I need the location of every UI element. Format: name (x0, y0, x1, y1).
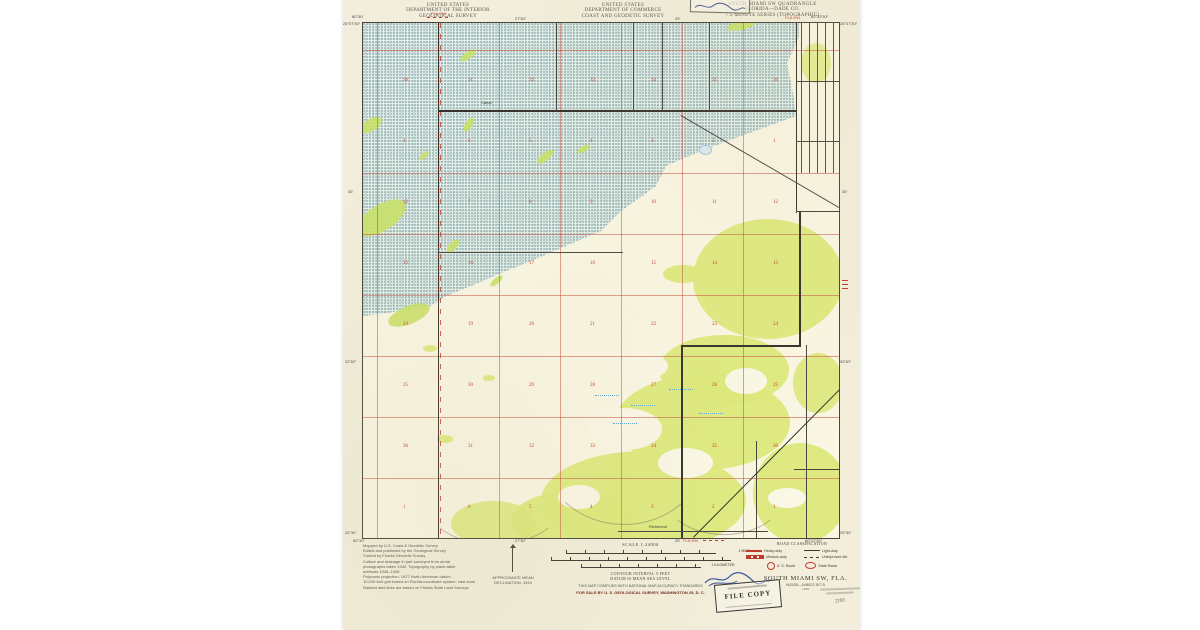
section-number: 34 (651, 444, 656, 449)
section-number: 11 (712, 200, 717, 205)
section-number: 15 (651, 261, 656, 266)
coord-bottom-left-lat: 25°30′ (345, 531, 356, 535)
section-number: 13 (403, 261, 408, 266)
file-copy-text: FILE COPY (716, 588, 780, 602)
stamp-smudge (820, 587, 860, 590)
section-number: 12 (773, 200, 778, 205)
tick-right-b: 32′30″ (840, 360, 851, 364)
section-number: 31 (468, 78, 473, 83)
tick-left-b: 32′30″ (345, 360, 356, 364)
section-number: 1 (773, 505, 776, 510)
scale-bar-feet: 7000 FEET (551, 557, 731, 561)
section-number: 33 (590, 78, 595, 83)
scale-bar-km-label: 1 KILOMETER (711, 563, 734, 567)
section-number: 4 (590, 139, 593, 144)
section-number: 2 (712, 139, 715, 144)
tick-bottom-a: 27′30″ (515, 539, 526, 543)
section-number: 6 (468, 139, 471, 144)
section-number: 24 (773, 322, 778, 327)
section-number: 25 (403, 383, 408, 388)
tick-top-a: 27′30″ (515, 17, 526, 21)
map-area: 3631323334353616543211278910111213181716… (362, 22, 840, 539)
cutoff-stamp (690, 0, 750, 14)
section-number: 21 (590, 322, 595, 327)
section-number: 2 (712, 505, 715, 510)
state-route-icon (805, 562, 816, 569)
stamp-scribble-icon (691, 0, 747, 13)
red-margin-mark (842, 288, 848, 289)
section-number: 4 (590, 505, 593, 510)
section-number: 35 (712, 78, 717, 83)
road-classification: ROAD CLASSIFICATION Heavy-duty Light-dut… (746, 541, 858, 570)
road-ref-top-label: FLA 994 (431, 12, 446, 16)
section-number: 6 (468, 505, 471, 510)
section-number: 1 (773, 139, 776, 144)
received-date-stamp (820, 584, 860, 597)
section-number: 29 (529, 383, 534, 388)
coord-bottom-right-lat: 25°30′ (840, 531, 851, 535)
section-number: 24 (403, 322, 408, 327)
declination-line (512, 546, 513, 572)
section-numbers-layer: 3631323334353616543211278910111213181716… (363, 23, 839, 538)
section-number: 36 (773, 78, 778, 83)
section-number: 16 (590, 261, 595, 266)
section-number: 3 (651, 139, 654, 144)
section-number: 32 (529, 78, 534, 83)
scale-bar-miles: 1 MILE (566, 550, 716, 554)
section-number: 5 (529, 505, 532, 510)
red-margin-mark (842, 284, 848, 285)
file-copy-stamp: FILE COPY (714, 579, 782, 613)
stamp-smudge (826, 592, 854, 595)
section-number: 34 (651, 78, 656, 83)
unimproved-label: Unimproved dirt (822, 555, 847, 559)
section-number: 35 (712, 444, 717, 449)
coord-top-right-lon: 80°22′30″ (811, 15, 828, 19)
road-ref-bottom-dashes (703, 540, 727, 541)
section-number: 1 (403, 505, 406, 510)
section-number: 26 (712, 383, 717, 388)
road-ref-top-dashes (427, 17, 451, 18)
section-number: 14 (712, 261, 717, 266)
credits-block: Mapped by U.S. Coast & Geodetic SurveyEd… (363, 543, 498, 590)
section-number: 5 (529, 139, 532, 144)
us-route-label: U. S. Route (777, 564, 796, 568)
section-number: 30 (468, 383, 473, 388)
state-route-label: State Route (818, 564, 837, 568)
section-number: 27 (651, 383, 656, 388)
tick-top-b: 25′ (675, 17, 680, 21)
richmond-label: Richmond (649, 525, 667, 529)
section-number: 36 (403, 444, 408, 449)
tick-left-a: 35′ (348, 190, 353, 194)
tick-right-a: 35′ (842, 190, 847, 194)
section-number: 7 (468, 200, 471, 205)
section-number: 20 (529, 322, 534, 327)
section-number: 17 (529, 261, 534, 266)
heavy-duty-line-icon (746, 550, 762, 552)
section-number: 1 (403, 139, 406, 144)
section-number: 31 (468, 444, 473, 449)
section-number: 3 (651, 505, 654, 510)
unimproved-line-icon (804, 557, 820, 558)
heavy-duty-label: Heavy-duty (764, 549, 782, 553)
road-ref-right-label: FLA 994 (785, 16, 800, 20)
section-number: 32 (529, 444, 534, 449)
section-number: 33 (590, 444, 595, 449)
handwritten-number: 2193 (835, 598, 845, 604)
section-number: 13 (773, 261, 778, 266)
section-number: 18 (468, 261, 473, 266)
stamp-small-line (726, 602, 772, 608)
red-margin-mark (842, 280, 848, 281)
medium-duty-label: Medium-duty (766, 555, 787, 559)
screenshot-canvas: UNITED STATES DEPARTMENT OF THE INTERIOR… (0, 0, 1200, 630)
light-duty-line-icon (804, 550, 820, 551)
credit-line: Dashed land lines are based on Florida S… (363, 585, 498, 590)
section-number: 10 (651, 200, 656, 205)
section-number: 23 (712, 322, 717, 327)
section-number: 36 (403, 78, 408, 83)
coord-top-left-lat: 25°37′30″ (343, 22, 361, 26)
section-number: 25 (773, 383, 778, 388)
road-classification-title: ROAD CLASSIFICATION (746, 541, 858, 546)
light-duty-label: Light-duty (822, 549, 838, 553)
scale-bar-km: 1 KILOMETER (581, 564, 701, 568)
section-number: 8 (529, 200, 532, 205)
section-number: 28 (590, 383, 595, 388)
section-number: 19 (468, 322, 473, 327)
coord-top-left-lon: 80°30′ (352, 15, 363, 19)
canal-label: Canal (481, 101, 491, 105)
section-number: 9 (590, 200, 593, 205)
scale-title: SCALE 1:24000 (538, 542, 743, 547)
section-number: 36 (773, 444, 778, 449)
section-number: 12 (403, 200, 408, 205)
coord-top-right-lat: 25°37′30″ (840, 22, 860, 26)
section-number: 22 (651, 322, 656, 327)
map-sheet: UNITED STATES DEPARTMENT OF THE INTERIOR… (343, 0, 860, 630)
medium-duty-line-icon (746, 555, 764, 559)
